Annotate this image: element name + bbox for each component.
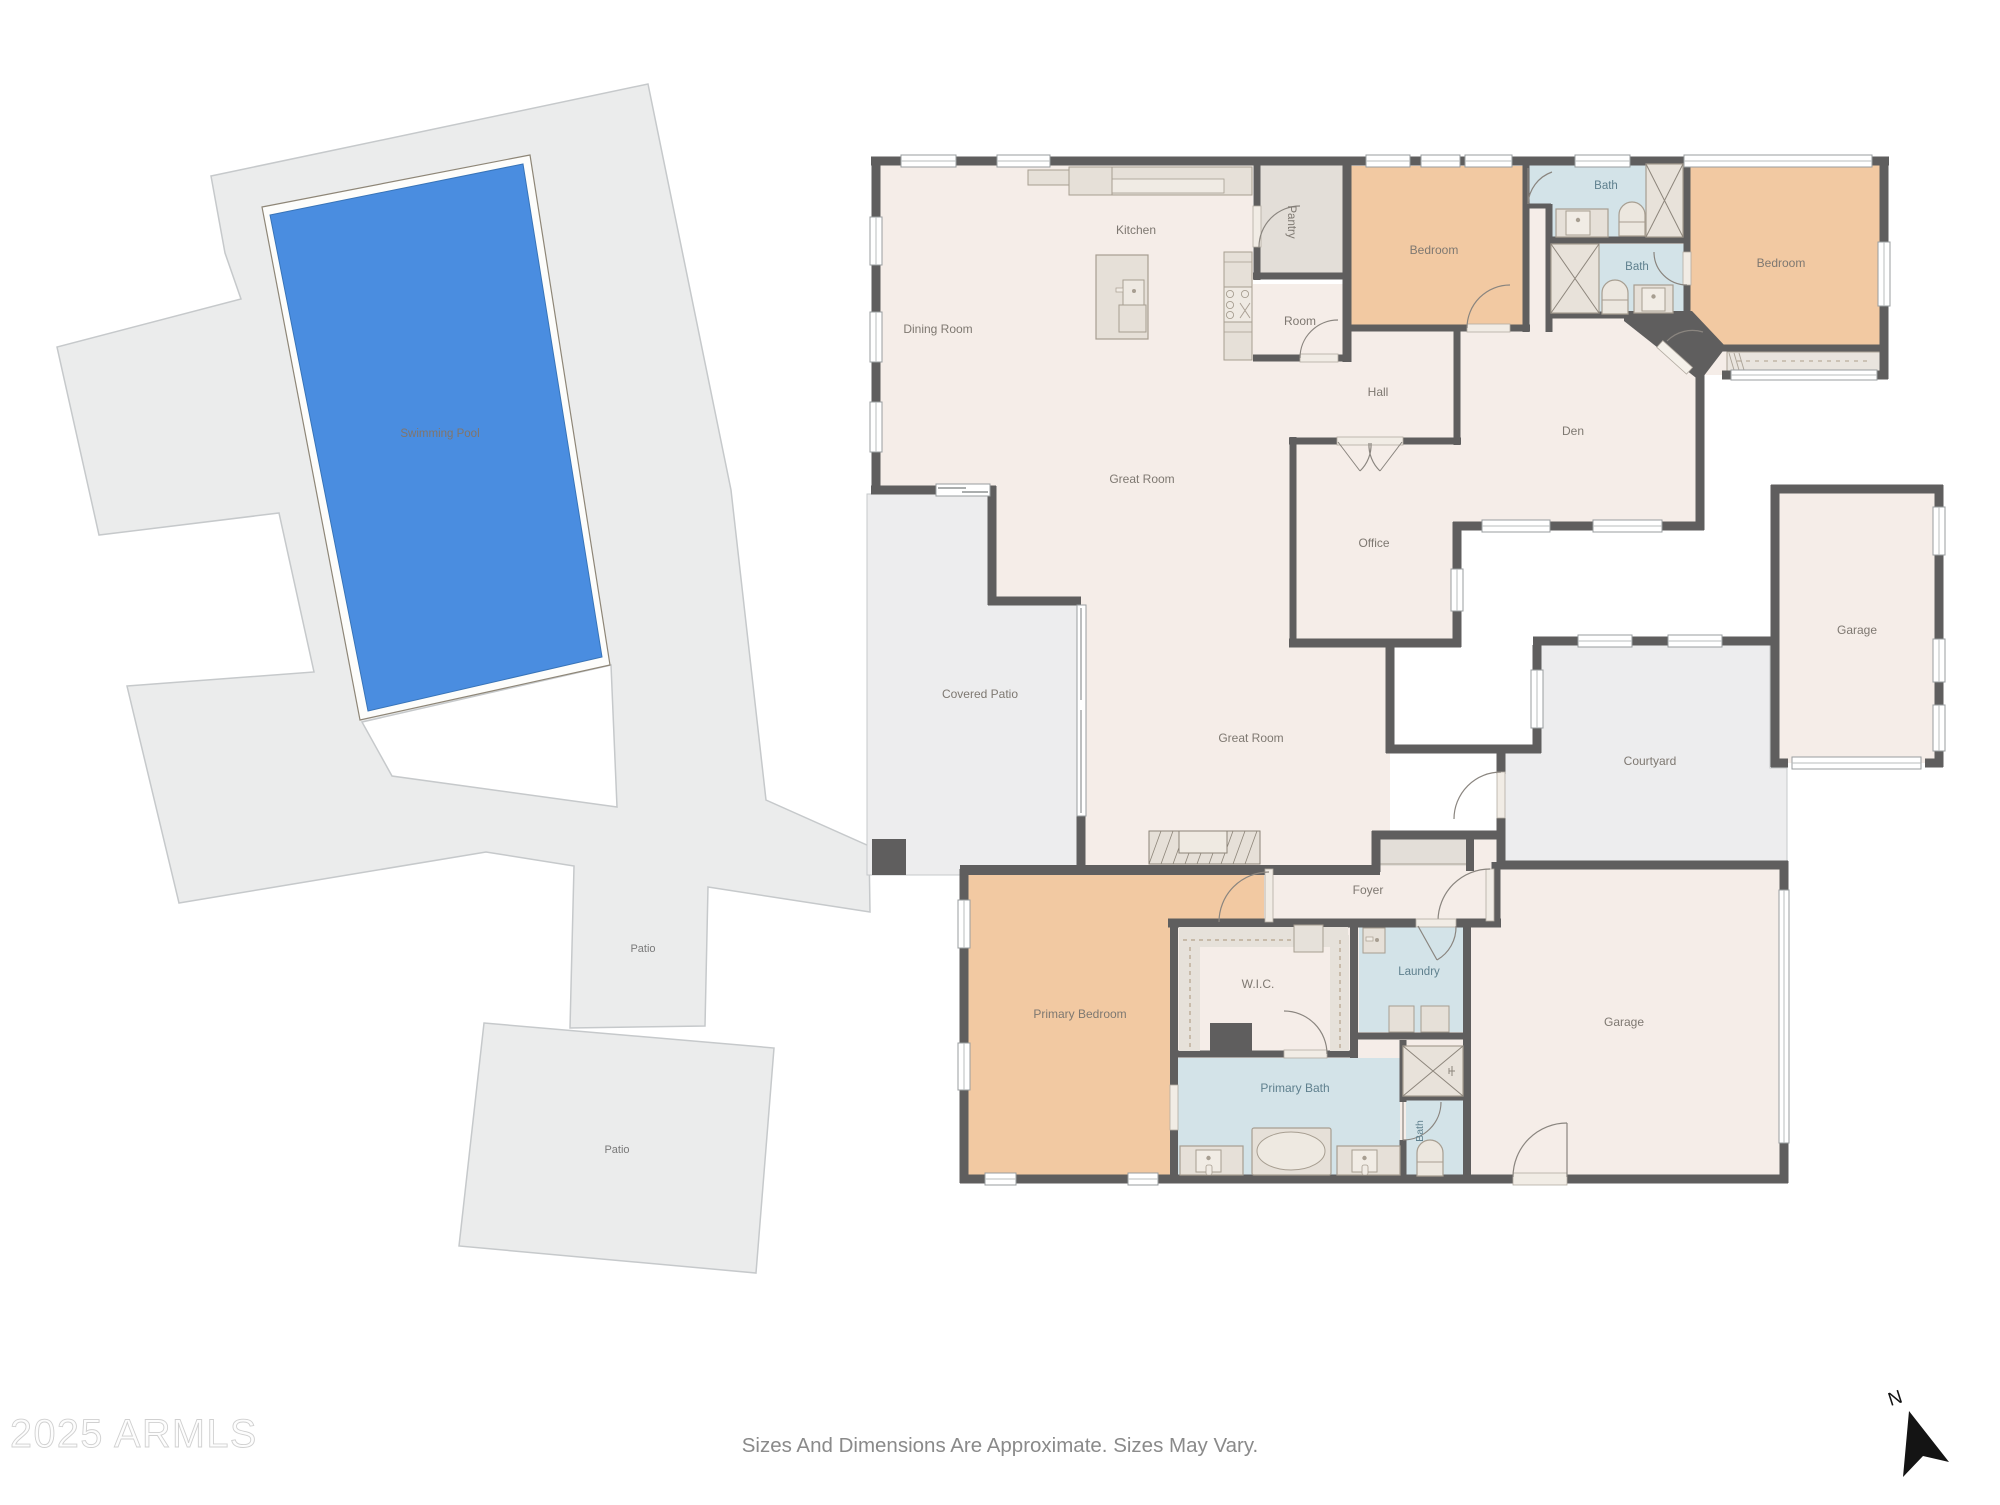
svg-text:Room: Room [1284, 314, 1316, 328]
svg-text:Garage: Garage [1837, 623, 1877, 637]
svg-text:W.I.C.: W.I.C. [1242, 977, 1275, 991]
svg-text:Bath: Bath [1594, 180, 1618, 192]
svg-text:Sizes And Dimensions Are Appro: Sizes And Dimensions Are Approximate. Si… [742, 1434, 1259, 1457]
svg-text:Covered Patio: Covered Patio [942, 687, 1018, 701]
svg-text:Foyer: Foyer [1353, 883, 1384, 897]
svg-text:Swimming Pool: Swimming Pool [400, 428, 479, 440]
svg-text:Courtyard: Courtyard [1624, 754, 1677, 768]
svg-text:Bath: Bath [1625, 261, 1649, 273]
svg-text:Great Room: Great Room [1109, 472, 1174, 486]
svg-text:2025 ARMLS: 2025 ARMLS [10, 1412, 258, 1456]
svg-text:Primary Bath: Primary Bath [1260, 1081, 1329, 1095]
svg-text:Pantry: Pantry [1285, 205, 1297, 238]
svg-text:Dining Room: Dining Room [903, 322, 972, 336]
svg-text:Office: Office [1358, 536, 1389, 550]
svg-text:Bath: Bath [1414, 1120, 1426, 1142]
svg-text:Great Room: Great Room [1218, 731, 1283, 745]
svg-text:Den: Den [1562, 424, 1584, 438]
svg-text:Bedroom: Bedroom [1757, 256, 1806, 270]
svg-text:Hall: Hall [1368, 385, 1389, 399]
svg-text:Patio: Patio [604, 1144, 629, 1156]
svg-text:Patio: Patio [630, 943, 655, 955]
svg-text:Kitchen: Kitchen [1116, 223, 1156, 237]
svg-text:Primary Bedroom: Primary Bedroom [1033, 1007, 1126, 1021]
svg-text:Laundry: Laundry [1398, 966, 1440, 978]
svg-text:Bedroom: Bedroom [1410, 243, 1459, 257]
svg-text:Garage: Garage [1604, 1015, 1644, 1029]
